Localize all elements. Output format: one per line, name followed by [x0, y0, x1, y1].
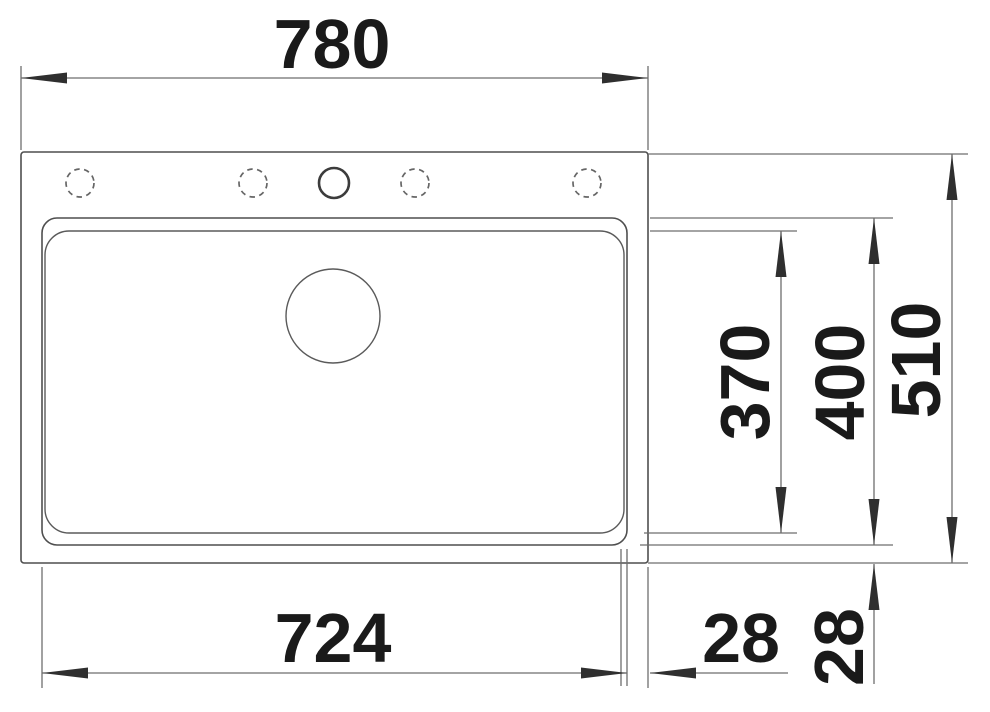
arrow-370-top-icon [776, 231, 787, 277]
drain-hole-circle [286, 269, 380, 363]
arrow-370-bottom-icon [776, 487, 787, 533]
dim-label-overall-depth: 510 [877, 302, 955, 419]
drawing-canvas: 780 724 28 370 400 510 28 [0, 0, 990, 712]
dim-label-bowl-depth: 400 [801, 324, 879, 441]
tap-hole-dashed-3 [401, 169, 429, 197]
arrow-400-bottom-icon [869, 499, 880, 545]
arrow-780-right-icon [602, 73, 648, 84]
dim-label-overall-width: 780 [274, 5, 391, 83]
dim-label-bottom-gap: 28 [800, 608, 878, 686]
bowl-floor-outline [45, 231, 624, 533]
dim-label-right-gap: 28 [702, 599, 780, 677]
sink-outline [21, 152, 648, 563]
dim-label-inner-depth: 370 [706, 324, 784, 441]
arrow-780-left-icon [21, 73, 67, 84]
arrow-510-bottom-icon [947, 517, 958, 563]
arrow-400-top-icon [869, 218, 880, 264]
bowl-rim-outline [42, 218, 627, 545]
arrow-28v-icon [869, 564, 880, 610]
tap-hole-dashed-1 [66, 169, 94, 197]
arrow-724-left-icon [42, 668, 88, 679]
tap-hole-solid [319, 168, 349, 198]
tap-hole-dashed-2 [239, 169, 267, 197]
dim-label-bowl-width: 724 [275, 599, 392, 677]
tap-hole-dashed-4 [573, 169, 601, 197]
sink-dimension-drawing: 780 724 28 370 400 510 28 [0, 0, 990, 712]
arrow-28h-icon [650, 668, 696, 679]
arrow-510-top-icon [947, 154, 958, 200]
arrow-724-right-icon [581, 668, 627, 679]
